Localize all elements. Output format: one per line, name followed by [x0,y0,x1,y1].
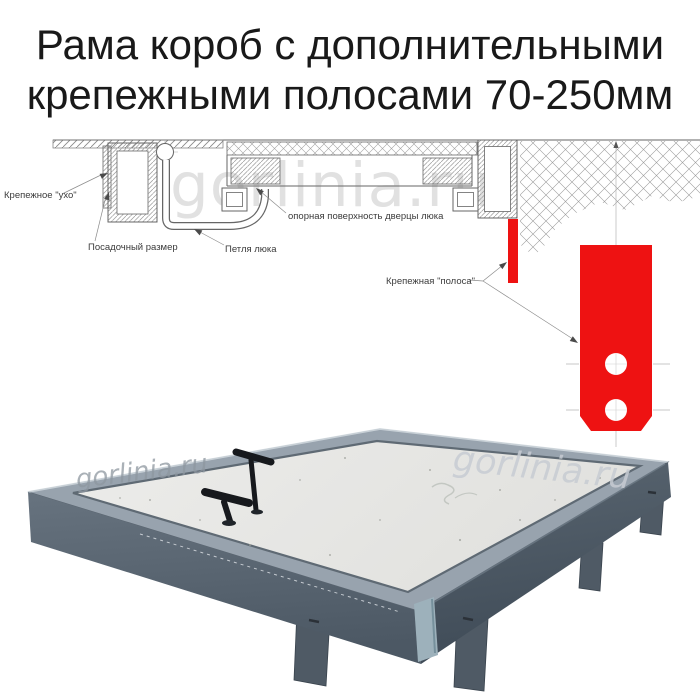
mounting-plate-red [580,245,652,431]
mounting-strip-red [508,219,518,283]
label-hinge: Петля люка [225,244,277,255]
label-ear: Крепежное "ухо" [4,190,77,201]
product-photo: gorlinia.ru gorlinia.ru [28,429,671,691]
technical-diagram: gorlinia.ru [4,140,700,447]
product-image: gorlinia.ru [0,0,700,700]
label-mount-size: Посадочный размер [88,242,178,253]
label-support-surface: опорная поверхность дверцы люка [288,211,444,222]
wall-hatch [520,141,700,254]
corner-opening [414,597,438,662]
hinge-pivot-circle [157,144,174,161]
label-strip: Крепежная "полоса" [386,276,475,287]
frame-profile-section [103,143,157,222]
